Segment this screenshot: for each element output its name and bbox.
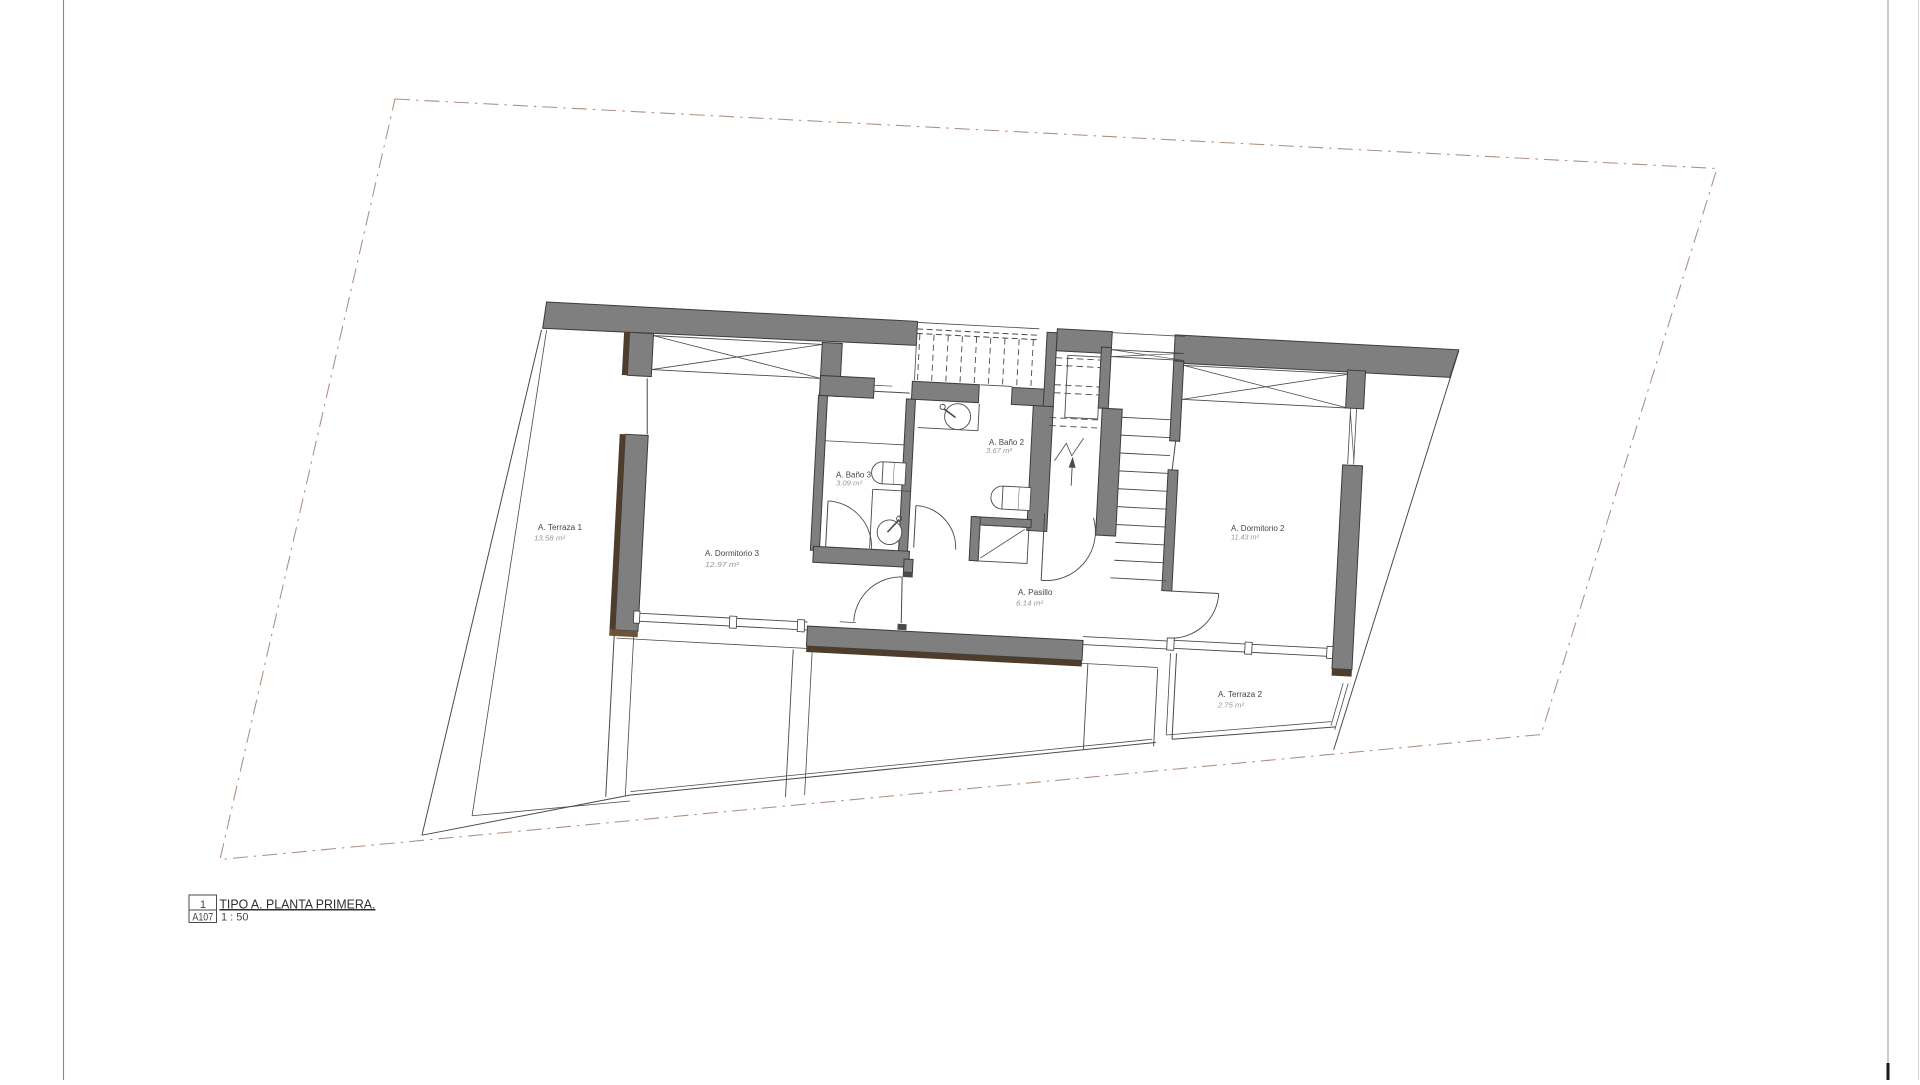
svg-text:3.09 m²: 3.09 m²	[836, 479, 863, 488]
svg-text:13.58 m²: 13.58 m²	[534, 534, 566, 543]
svg-text:A. Pasillo: A. Pasillo	[1018, 588, 1053, 597]
svg-text:A107: A107	[192, 912, 213, 924]
svg-text:1 : 50: 1 : 50	[221, 912, 249, 924]
svg-text:2.75 m²: 2.75 m²	[1217, 701, 1245, 710]
svg-text:A. Dormitorio 3: A. Dormitorio 3	[705, 549, 760, 558]
svg-text:6.14 m²: 6.14 m²	[1016, 599, 1044, 608]
svg-text:3.67 m²: 3.67 m²	[986, 446, 1013, 455]
svg-text:A. Terraza 1: A. Terraza 1	[538, 523, 583, 532]
svg-text:1: 1	[200, 899, 206, 911]
svg-text:12.97 m²: 12.97 m²	[705, 560, 740, 569]
svg-text:A. Terraza 2: A. Terraza 2	[1218, 690, 1263, 699]
svg-text:11.43 m²: 11.43 m²	[1231, 533, 1260, 542]
